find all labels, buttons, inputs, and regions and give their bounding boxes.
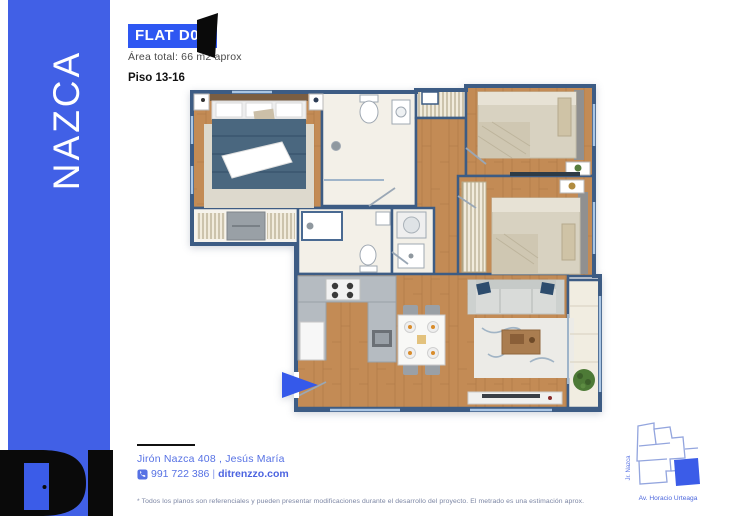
unit-header: FLAT D01 Área total: 66 m2 aprox Piso 13… — [128, 24, 242, 84]
chair — [425, 305, 440, 316]
pillow — [558, 98, 571, 136]
fridge — [300, 322, 324, 360]
footer-divider — [137, 444, 195, 446]
sofa-pillow — [540, 282, 555, 295]
logo-door-handle — [43, 485, 47, 489]
map-highlight-lot — [674, 458, 700, 486]
toilet — [360, 101, 378, 123]
tv — [482, 394, 540, 398]
chair — [403, 364, 418, 375]
area-total: Área total: 66 m2 aprox — [128, 51, 242, 63]
pipe-separator: | — [212, 468, 215, 480]
wardrobe — [462, 182, 486, 272]
footer-contact: Jirón Nazca 408 , Jesús María 991 722 38… — [137, 444, 607, 480]
di-logo — [0, 450, 118, 516]
chair — [403, 305, 418, 316]
shower-head — [332, 142, 341, 151]
floor-range: Piso 13-16 — [128, 72, 242, 84]
open-door-icon — [194, 10, 224, 60]
map-street-left-label: Jr. Nazca — [626, 455, 632, 481]
map-street-bottom-label: Av. Horacio Urteaga — [639, 495, 698, 502]
brand-sidebar: NAZCA — [8, 0, 110, 516]
phone-icon — [137, 469, 148, 480]
brand-name: NAZCA — [45, 40, 89, 200]
pillow — [562, 224, 575, 260]
stove — [326, 279, 360, 300]
floor-plan-image — [170, 84, 640, 416]
small-sink — [376, 212, 390, 225]
website-link[interactable]: ditrenzzo.com — [218, 468, 289, 480]
toilet — [360, 245, 376, 265]
location-map: Jr. Nazca Av. Horacio Urteaga — [608, 416, 726, 512]
phone-number: 991 722 386 — [151, 468, 209, 480]
brochure-page: NAZCA FLAT D01 Área total: 66 m2 aprox P… — [0, 0, 730, 516]
legal-disclaimer: * Todos los planos son referenciales y p… — [137, 498, 584, 505]
nightstand — [194, 94, 209, 110]
logo-letter-i — [88, 450, 113, 516]
headboard — [210, 94, 308, 101]
address-text: Jirón Nazca 408 , Jesús María — [137, 453, 607, 465]
tv-bar — [510, 172, 580, 176]
chair — [425, 364, 440, 375]
dining-furniture — [398, 305, 445, 375]
duct — [422, 92, 438, 104]
